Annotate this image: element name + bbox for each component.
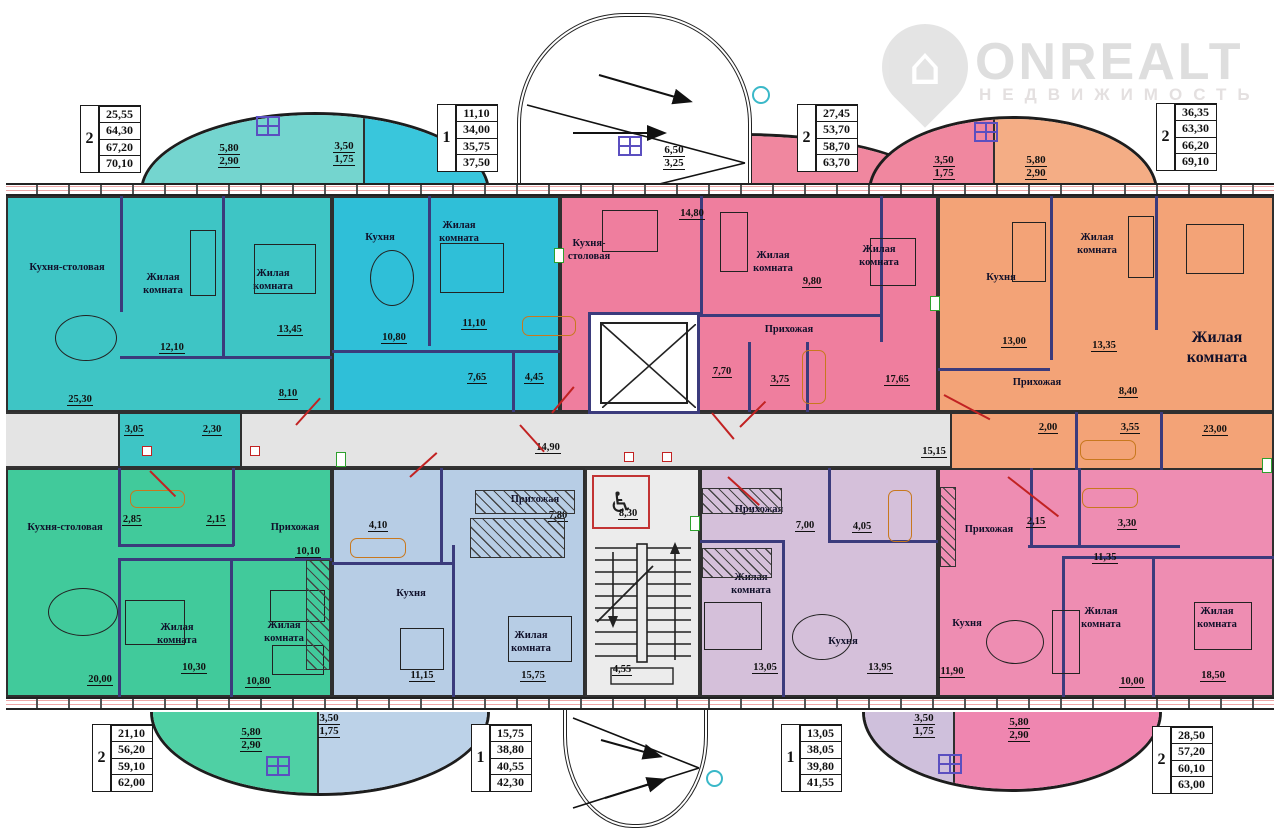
stair-dim: 4,55 [600, 664, 644, 676]
window-icon [256, 116, 280, 136]
wall [938, 368, 1050, 371]
room-label: Кухня-столовая [22, 262, 112, 275]
room-label: Кухня-столовая [20, 522, 110, 535]
vent-symbol-icon [336, 452, 346, 467]
area-dim: 13,05 [743, 662, 787, 674]
spec-table-bottom-right: 2 28,50 57,20 60,10 63,00 [1152, 726, 1213, 794]
area-dim: 13,95 [858, 662, 902, 674]
elevator-cab [600, 322, 688, 404]
area-dim: 18,50 [1191, 670, 1235, 682]
area-dim: 13,35 [1082, 340, 1126, 352]
area-dim: 25,30 [58, 394, 102, 406]
bed [190, 230, 216, 296]
area-dim: 2,00 [1026, 422, 1070, 434]
area-value: 27,45 [816, 105, 858, 123]
wardrobe [470, 518, 565, 558]
area-value: 57,20 [1171, 743, 1213, 761]
bathtub [802, 350, 826, 404]
area-value: 36,35 [1175, 104, 1217, 122]
balcony-dim: 5,802,90 [225, 726, 277, 752]
room-count: 2 [81, 106, 99, 172]
escape-ring-icon [706, 770, 723, 787]
escape-arrows-icon [521, 17, 750, 189]
window-band-bottom [6, 697, 1274, 710]
utility-symbol-icon [142, 446, 152, 456]
elevator-shaft [588, 312, 700, 414]
vent-symbol-icon [690, 516, 700, 531]
dining-table [400, 628, 444, 670]
area-dim: 2,30 [190, 424, 234, 436]
area-value: 39,80 [800, 758, 842, 776]
wall [428, 196, 431, 346]
spec-table-bottom-center-right: 1 13,05 38,05 39,80 41,55 [781, 724, 842, 792]
balcony-dim: 3,501,75 [898, 712, 950, 738]
window-icon [266, 756, 290, 776]
spec-table-bottom-left: 2 21,10 56,20 59,10 62,00 [92, 724, 153, 792]
area-dim: 3,05 [112, 424, 156, 436]
area-value: 69,10 [1175, 153, 1217, 171]
spec-table-top-center-right: 2 27,45 53,70 58,70 63,70 [797, 104, 858, 172]
area-dim: 3,30 [1105, 518, 1149, 530]
balcony-green [153, 712, 317, 793]
balcony-dim: 5,802,90 [993, 716, 1045, 742]
corridor-dim: 15,15 [912, 446, 956, 458]
area-dim: 20,00 [78, 674, 122, 686]
window-icon [974, 122, 998, 142]
logo-pin-icon: ⌂ [864, 6, 986, 128]
area-dim: 3,75 [758, 374, 802, 386]
room-count: 2 [93, 725, 111, 791]
area-dim: 11,90 [930, 666, 974, 678]
window-icon [618, 136, 642, 156]
room-count: 1 [472, 725, 490, 791]
area-value: 59,10 [111, 758, 153, 776]
wall [748, 342, 751, 412]
vent-symbol-icon [930, 296, 940, 311]
area-value: 37,50 [456, 154, 498, 172]
dining-table [1012, 222, 1046, 282]
area-dim: 4,45 [512, 372, 556, 384]
wardrobe [702, 488, 782, 514]
area-value: 67,20 [99, 139, 141, 157]
room-label: Жилая комната [1066, 232, 1128, 257]
dining-table [370, 250, 414, 306]
area-dim: 3,55 [1108, 422, 1152, 434]
room-label: Кухня [356, 232, 404, 245]
area-value: 38,05 [800, 741, 842, 759]
area-value: 56,20 [111, 741, 153, 759]
wardrobe [475, 490, 575, 514]
area-dim: 11,15 [400, 670, 444, 682]
area-value: 34,00 [456, 121, 498, 139]
spec-table-top-right: 2 36,35 63,30 66,20 69,10 [1156, 103, 1217, 171]
bed [440, 243, 504, 293]
bed [1194, 602, 1252, 650]
wheelchair-icon: ♿ [592, 475, 650, 529]
balcony-dim: 3,501,75 [318, 140, 370, 166]
spec-table-top-center-left: 1 11,10 34,00 35,75 37,50 [437, 104, 498, 172]
bed [1052, 610, 1080, 674]
dining-table [48, 588, 118, 636]
fire-escape-u [563, 710, 708, 828]
area-dim: 2,85 [110, 514, 154, 526]
area-value: 41,55 [800, 774, 842, 792]
bed [125, 600, 185, 645]
room-count: 2 [1157, 104, 1175, 170]
area-value: 53,70 [816, 121, 858, 139]
wall [1155, 196, 1158, 330]
bed [1128, 216, 1154, 278]
area-dim: 13,00 [992, 336, 1036, 348]
area-value: 28,50 [1171, 727, 1213, 745]
balcony-pink2 [953, 712, 1159, 789]
bed [720, 212, 748, 272]
area-dim: 10,80 [372, 332, 416, 344]
area-dim: 2,15 [1014, 516, 1058, 528]
area-dim: 7,65 [455, 372, 499, 384]
wall [1078, 468, 1081, 546]
bed [1186, 224, 1244, 274]
dining-table [602, 210, 658, 252]
room-label: Жилая комната [1162, 328, 1272, 368]
bathtub [522, 316, 576, 336]
area-dim: 11,35 [1083, 552, 1127, 564]
area-dim: 8,10 [266, 388, 310, 400]
escape-arrows-icon [567, 710, 706, 821]
bed [704, 602, 762, 650]
vent-symbol-icon [1262, 458, 1272, 473]
wall [120, 356, 332, 359]
area-value: 58,70 [816, 138, 858, 156]
area-dim: 10,00 [1110, 676, 1154, 688]
wall [332, 350, 560, 353]
wall [1030, 468, 1033, 546]
floor-plan: ⌂ ONREALT НЕДВИЖИМОСТЬ [0, 0, 1280, 831]
wall [700, 314, 882, 317]
wall [332, 562, 452, 565]
apartment-top-left-bath-block [118, 412, 242, 468]
room-count: 1 [782, 725, 800, 791]
fire-escape-arch [517, 13, 752, 192]
utility-symbol-icon [250, 446, 260, 456]
wall [118, 558, 332, 561]
wall [232, 468, 235, 546]
wall [828, 540, 938, 543]
area-dim: 7,00 [783, 520, 827, 532]
wardrobe [306, 560, 330, 670]
room-count: 2 [798, 105, 816, 171]
area-value: 25,55 [99, 106, 141, 124]
area-value: 64,30 [99, 122, 141, 140]
room-label: Кухня [386, 588, 436, 601]
area-dim: 2,15 [194, 514, 238, 526]
balcony-dim: 5,802,90 [1010, 154, 1062, 180]
vent-symbol-icon [554, 248, 564, 263]
room-label: Жилая комната [742, 250, 804, 275]
wall [222, 196, 225, 356]
wall [1028, 545, 1180, 548]
area-value: 40,55 [490, 758, 532, 776]
area-value: 11,10 [456, 105, 498, 123]
area-value: 70,10 [99, 155, 141, 173]
area-dim: 7,70 [700, 366, 744, 378]
area-dim: 10,80 [236, 676, 280, 688]
logo-brand: ONREALT [975, 32, 1243, 92]
area-dim: 9,80 [790, 276, 834, 288]
utility-symbol-icon [662, 452, 672, 462]
wall [120, 196, 123, 312]
wall [828, 468, 831, 542]
area-dim: 4,05 [840, 521, 884, 533]
area-value: 38,80 [490, 741, 532, 759]
room-label: Прихожая [256, 522, 334, 535]
window-band-top [6, 183, 1274, 196]
area-value: 66,20 [1175, 137, 1217, 155]
balcony-dim: 3,501,75 [303, 712, 355, 738]
area-dim: 14,80 [670, 208, 714, 220]
stairwell: ♿ [585, 468, 700, 697]
area-value: 60,10 [1171, 760, 1213, 778]
area-dim: 23,00 [1193, 424, 1237, 436]
area-value: 63,70 [816, 154, 858, 172]
room-count: 1 [438, 105, 456, 171]
area-dim: 10,30 [172, 662, 216, 674]
house-icon: ⌂ [882, 24, 968, 110]
area-value: 42,30 [490, 774, 532, 792]
area-dim: 13,45 [268, 324, 312, 336]
logo-tagline: НЕДВИЖИМОСТЬ [979, 85, 1261, 105]
spec-table-top-left: 2 25,55 64,30 67,20 70,10 [80, 105, 141, 173]
wall [700, 540, 784, 543]
area-dim: 11,10 [452, 318, 496, 330]
dining-table [792, 614, 852, 660]
room-label: Прихожая [750, 324, 828, 337]
dining-table [55, 315, 117, 361]
area-dim: 4,10 [356, 520, 400, 532]
balcony-dim: 5,802,90 [203, 142, 255, 168]
wardrobe [940, 487, 956, 567]
bathtub [130, 490, 185, 508]
area-value: 62,00 [111, 774, 153, 792]
escape-ring-icon [752, 86, 770, 104]
window-icon [938, 754, 962, 774]
room-label: Жилая комната [128, 272, 198, 297]
wall [1160, 412, 1163, 470]
wall [230, 558, 233, 697]
area-value: 21,10 [111, 725, 153, 743]
room-label: Жилая комната [428, 220, 490, 245]
bed [870, 238, 916, 286]
wall [440, 468, 443, 564]
utility-symbol-icon [624, 452, 634, 462]
spec-table-bottom-center-left: 1 15,75 38,80 40,55 42,30 [471, 724, 532, 792]
room-count: 2 [1153, 727, 1171, 793]
apartment-top-left [6, 196, 332, 412]
area-value: 15,75 [490, 725, 532, 743]
room-label: Кухня [942, 618, 992, 631]
wall [118, 468, 121, 546]
area-dim: 12,10 [150, 342, 194, 354]
bed [508, 616, 572, 662]
wardrobe [702, 548, 772, 578]
corridor-dim: 14,90 [526, 442, 570, 454]
area-dim: 15,75 [511, 670, 555, 682]
area-value: 63,30 [1175, 120, 1217, 138]
dining-table [986, 620, 1044, 664]
wall [1075, 412, 1078, 470]
wall [118, 544, 234, 547]
stair-dim: 8,30 [606, 508, 650, 520]
area-value: 35,75 [456, 138, 498, 156]
balcony-dim: 6,503,25 [648, 144, 700, 170]
bed [254, 244, 316, 294]
area-dim: 17,65 [875, 374, 919, 386]
bathtub [888, 490, 912, 542]
room-label: Прихожая [998, 377, 1076, 390]
balcony-dim: 3,501,75 [918, 154, 970, 180]
bathtub [350, 538, 406, 558]
wall [1050, 196, 1053, 360]
area-dim: 10,10 [286, 546, 330, 558]
bathtub [1080, 440, 1136, 460]
wall [452, 545, 455, 697]
area-dim: 8,40 [1106, 386, 1150, 398]
area-value: 13,05 [800, 725, 842, 743]
area-value: 63,00 [1171, 776, 1213, 794]
bathtub [1082, 488, 1138, 508]
